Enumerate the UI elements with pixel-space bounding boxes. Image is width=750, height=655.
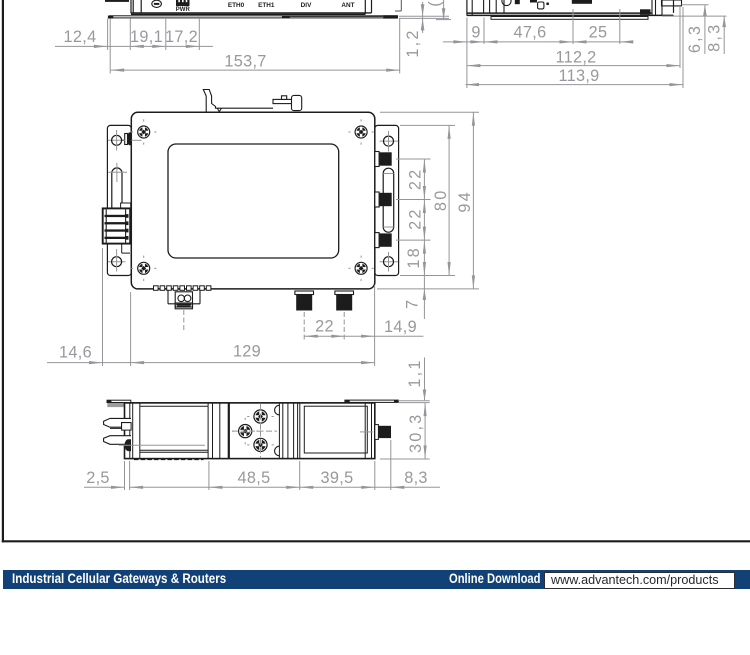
svg-text:112,2: 112,2 [555,48,596,66]
svg-text:47,6: 47,6 [514,23,547,41]
svg-text:80: 80 [432,189,450,212]
svg-text:6,3: 6,3 [686,24,704,53]
svg-text:113,9: 113,9 [558,67,599,85]
svg-text:2,5: 2,5 [86,469,110,487]
svg-text:ETH1: ETH1 [258,2,275,9]
svg-text:94: 94 [456,190,474,213]
svg-text:ETH0: ETH0 [228,2,245,9]
svg-text:14,6: 14,6 [59,344,92,362]
svg-text:39,5: 39,5 [321,469,354,487]
svg-text:DIV: DIV [301,2,312,9]
svg-text:1,1: 1,1 [406,358,424,387]
svg-text:14,9: 14,9 [384,318,417,336]
svg-text:25: 25 [589,23,608,41]
svg-text:153,7: 153,7 [224,52,266,70]
svg-text:22: 22 [406,207,424,230]
svg-text:8,3: 8,3 [705,23,723,52]
svg-text:8,3: 8,3 [404,469,428,487]
svg-text:9: 9 [471,23,480,41]
svg-text:17,2: 17,2 [165,28,198,46]
svg-text:7: 7 [404,298,422,309]
svg-text:22: 22 [406,168,424,191]
svg-text:48,5: 48,5 [238,469,271,487]
svg-text:ANT: ANT [341,2,354,9]
svg-text:30,3: 30,3 [407,413,425,454]
svg-text:12,4: 12,4 [64,28,97,46]
svg-text:22: 22 [315,318,334,336]
svg-text:(3): (3) [426,0,444,7]
svg-text:PWR: PWR [176,7,191,13]
svg-text:18: 18 [405,246,423,269]
svg-text:19,1: 19,1 [130,28,163,46]
svg-text:1,2: 1,2 [404,28,422,57]
svg-text:129: 129 [233,343,261,361]
